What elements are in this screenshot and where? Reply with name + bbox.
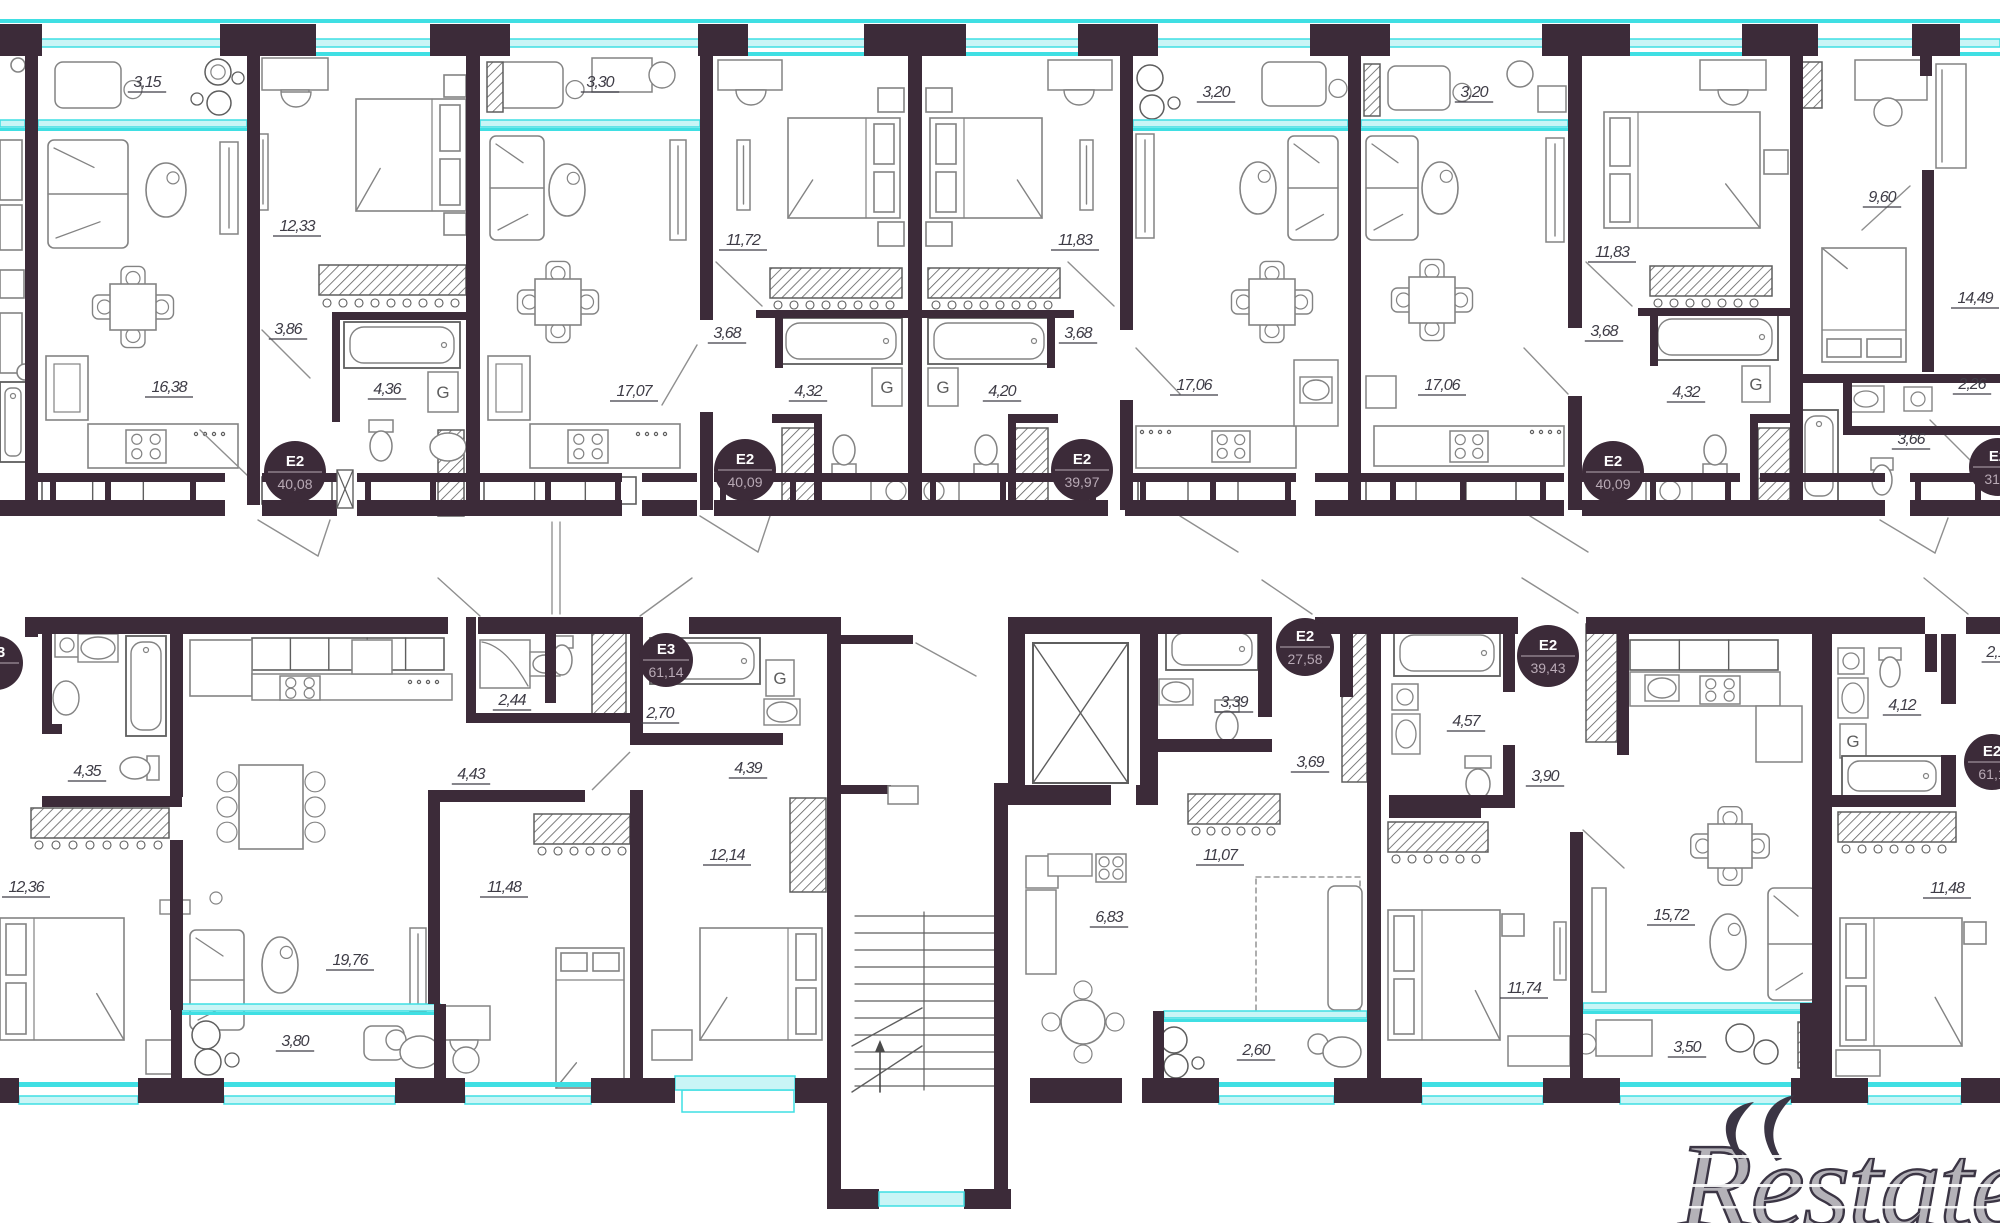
- svg-text:E2: E2: [1539, 637, 1557, 654]
- svg-text:19,76: 19,76: [332, 952, 368, 969]
- svg-text:4,35: 4,35: [73, 763, 101, 780]
- svg-text:3,69: 3,69: [1296, 754, 1324, 771]
- svg-text:39,43: 39,43: [1530, 660, 1565, 676]
- svg-text:3,68: 3,68: [1590, 323, 1618, 340]
- svg-text:39,97: 39,97: [1064, 474, 1099, 490]
- svg-text:14,49: 14,49: [1957, 290, 1993, 307]
- svg-text:E2: E2: [736, 451, 754, 468]
- svg-text:40,08: 40,08: [277, 476, 312, 492]
- svg-text:E2: E2: [1989, 448, 2000, 465]
- svg-text:12,36: 12,36: [8, 879, 44, 896]
- svg-text:2,1: 2,1: [1985, 644, 2000, 661]
- svg-text:61,14: 61,14: [648, 664, 683, 680]
- svg-text:11,74: 11,74: [1507, 980, 1542, 997]
- svg-text:E2: E2: [1296, 628, 1314, 645]
- svg-text:40,09: 40,09: [727, 474, 762, 490]
- svg-text:11,48: 11,48: [1930, 880, 1965, 897]
- svg-text:G: G: [880, 378, 893, 397]
- svg-text:27,58: 27,58: [1287, 651, 1322, 667]
- svg-text:G: G: [1749, 375, 1762, 394]
- svg-text:11,83: 11,83: [1058, 232, 1093, 249]
- svg-text:E2: E2: [1073, 451, 1091, 468]
- svg-text:2,70: 2,70: [645, 705, 674, 722]
- svg-text:4,36: 4,36: [373, 381, 401, 398]
- svg-text:11,07: 11,07: [1203, 847, 1239, 864]
- svg-text:4,32: 4,32: [1672, 384, 1700, 401]
- svg-text:4,12: 4,12: [1888, 697, 1916, 714]
- svg-text:4,20: 4,20: [988, 383, 1016, 400]
- svg-text:G: G: [1846, 732, 1859, 751]
- svg-text:11,72: 11,72: [726, 232, 761, 249]
- svg-text:16,38: 16,38: [151, 379, 187, 396]
- svg-text:11,48: 11,48: [487, 879, 522, 896]
- svg-text:G: G: [436, 383, 449, 402]
- svg-text:E2: E2: [286, 453, 304, 470]
- svg-text:3,15: 3,15: [133, 74, 161, 91]
- svg-text:2,60: 2,60: [1241, 1042, 1270, 1059]
- svg-text:12,14: 12,14: [709, 847, 745, 864]
- svg-text:3,68: 3,68: [713, 325, 741, 342]
- svg-text:2,44: 2,44: [497, 692, 526, 709]
- svg-text:3,20: 3,20: [1202, 84, 1230, 101]
- svg-text:17,06: 17,06: [1176, 377, 1212, 394]
- svg-text:3,66: 3,66: [1897, 431, 1925, 448]
- svg-text:11,83: 11,83: [1595, 244, 1630, 261]
- svg-text:G: G: [773, 669, 786, 688]
- svg-text:3,86: 3,86: [274, 321, 302, 338]
- svg-text:3,20: 3,20: [1460, 84, 1488, 101]
- svg-text:6,83: 6,83: [1095, 909, 1123, 926]
- svg-text:2,26: 2,26: [1957, 376, 1986, 393]
- svg-text:17,07: 17,07: [616, 383, 653, 400]
- svg-text:3,68: 3,68: [1064, 325, 1092, 342]
- svg-text:17,06: 17,06: [1424, 377, 1460, 394]
- svg-text:3,39: 3,39: [1220, 694, 1248, 711]
- svg-text:3,90: 3,90: [1531, 768, 1559, 785]
- svg-text:E3: E3: [657, 641, 675, 658]
- svg-text:E2: E2: [1604, 453, 1622, 470]
- svg-text:G: G: [936, 378, 949, 397]
- svg-text:4,43: 4,43: [457, 766, 485, 783]
- svg-text:E2: E2: [1983, 743, 2000, 760]
- svg-text:3,80: 3,80: [281, 1033, 309, 1050]
- svg-text:4,39: 4,39: [734, 760, 762, 777]
- svg-text:61,1: 61,1: [1978, 766, 2000, 782]
- svg-text:15,72: 15,72: [1653, 907, 1689, 924]
- svg-text:31,0: 31,0: [1984, 471, 2000, 487]
- svg-text:3,30: 3,30: [586, 74, 614, 91]
- svg-text:9,60: 9,60: [1868, 189, 1896, 206]
- svg-text:4,57: 4,57: [1452, 713, 1481, 730]
- svg-text:E3: E3: [0, 644, 5, 661]
- svg-text:3,50: 3,50: [1673, 1039, 1701, 1056]
- svg-text:40,09: 40,09: [1595, 476, 1630, 492]
- svg-text:4,32: 4,32: [794, 383, 822, 400]
- svg-text:12,33: 12,33: [279, 218, 315, 235]
